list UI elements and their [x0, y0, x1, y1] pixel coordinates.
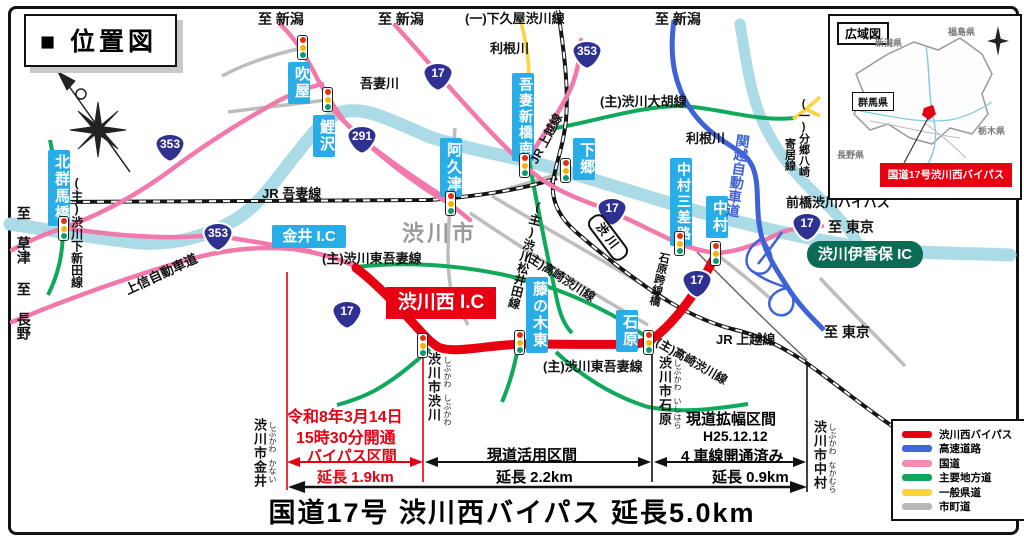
legend-row: 一般県道: [902, 486, 1020, 498]
route-shield-353: 353: [201, 221, 235, 252]
river-name-label: 吾妻川: [360, 77, 399, 91]
ic-ramp-loop: [769, 288, 793, 315]
dest-label: 至 草津: [16, 206, 31, 264]
road-name-label: (一)下久屋渋川線: [465, 12, 565, 26]
railways: [55, 10, 895, 428]
inset-callout-box: 国道17号渋川西バイパス: [880, 163, 1012, 187]
sign-koizawa: 鯉沢: [313, 115, 335, 157]
genko-length-label: 延長 2.2km: [496, 466, 573, 487]
bypass-length-label: 延長 1.9km: [317, 466, 394, 487]
legend-swatch-municipal: [902, 503, 932, 510]
shield-number: 353: [570, 44, 604, 58]
railway-name-label: JR 上越線: [716, 333, 775, 347]
inset-compass-needle: [987, 38, 1009, 44]
pref-label-fukushima: 福島県: [948, 25, 975, 38]
route-shield-291: 291: [345, 124, 379, 155]
sign-fujinoki-higashi: 藤の木東: [526, 277, 548, 353]
sign-shimogo: 下郷: [573, 138, 595, 180]
legend-row: 市町道: [902, 501, 1020, 513]
sign-kanai-ic: 金井 I.C: [272, 225, 346, 248]
route-shield-353: 353: [570, 39, 604, 70]
furigana-label: しぶかわ: [267, 421, 278, 453]
traffic-signal-icon: [560, 158, 571, 183]
bypass-section-label: バイパス区間: [307, 445, 397, 466]
kakufuku-date-label: H25.12.12: [703, 428, 768, 444]
compass-arrowhead: [58, 72, 75, 90]
traffic-signal-icon: [519, 153, 530, 178]
shield-number: 291: [345, 129, 379, 143]
map-legend: 渋川西バイパス 高速道路 国道 主要地方道 一般県道 市町道: [891, 419, 1024, 521]
kakufuku-length-label: 延長 0.9km: [712, 466, 789, 487]
furigana-label: しぶかわ: [442, 394, 453, 426]
arrowhead: [793, 457, 806, 467]
city-name-label: 渋川市: [402, 222, 477, 245]
arrowhead: [425, 457, 438, 467]
shibukawa-ikaho-ic-pill: 渋川伊香保 IC: [807, 241, 923, 268]
shield-number: 17: [680, 273, 714, 287]
figure-caption: 国道17号 渋川西バイパス 延長5.0km: [0, 491, 1024, 530]
furigana-label: しぶかわ: [672, 359, 683, 391]
route-shield-17: 17: [680, 268, 714, 299]
shield-number: 353: [201, 226, 235, 240]
green-road-south-2: [502, 347, 518, 402]
dest-label: 至 東京: [828, 220, 874, 235]
legend-swatch-bypass: [902, 431, 932, 438]
legend-label: 主要地方道: [939, 470, 992, 485]
traffic-signal-icon: [674, 231, 685, 256]
sign-fukiya: 吹屋: [288, 62, 310, 104]
traffic-signal-icon: [417, 333, 428, 358]
arrowhead: [638, 457, 651, 467]
legend-row: 渋川西バイパス: [902, 428, 1020, 440]
arrowhead: [287, 457, 300, 467]
compass-ring: [76, 89, 86, 99]
dest-label: 至 東京: [824, 325, 870, 340]
traffic-signal-icon: [297, 35, 308, 60]
furigana-label: なかむら: [827, 461, 838, 493]
shibukawa-nishi-ic-box: 渋川西 I.C: [386, 287, 496, 319]
shield-number: 17: [330, 304, 364, 318]
route-shield-17: 17: [330, 299, 364, 330]
pref-label-nagano: 長野県: [837, 148, 864, 161]
pink-kamishin-road: [12, 248, 310, 322]
traffic-signal-icon: [445, 191, 456, 216]
road-name-label: (主)渋川東吾妻線: [322, 252, 422, 266]
route-shield-353: 353: [153, 132, 187, 163]
green-road-south-1: [337, 349, 430, 405]
road-name-label: 寄居線: [783, 138, 795, 171]
inset-compass-icon: [987, 26, 1009, 56]
gray-road: [820, 278, 905, 366]
river-name-label: 利根川: [686, 132, 725, 146]
sign-akutsu: 阿久津: [440, 138, 462, 197]
sign-azuma-shinbashi-minami: 吾妻新橋南: [512, 73, 534, 161]
legend-swatch-prefectural: [902, 489, 932, 496]
pref-label-niigata: 新潟県: [875, 36, 902, 49]
dest-label: 至 長野: [16, 282, 31, 340]
shield-number: 353: [153, 137, 187, 151]
location-map-figure: ■ 位置図 353 353 353 291 17 17 17 17 17 吹屋 …: [0, 0, 1024, 539]
traffic-signal-icon: [58, 216, 69, 241]
road-name-label: (主)渋川大胡線: [600, 95, 687, 109]
traffic-signal-icon: [322, 87, 333, 112]
dest-label: 至 新潟: [378, 12, 424, 27]
route-shield-17: 17: [421, 61, 455, 92]
legend-label: 渋川西バイパス: [939, 427, 1012, 442]
sign-kitagunma-bashi: 北群馬橋: [48, 150, 70, 226]
arrowhead: [654, 457, 667, 467]
furigana-label: かない: [267, 459, 278, 483]
genko-section-label: 現道活用区間: [487, 444, 577, 465]
furigana-label: いしはら: [672, 397, 683, 429]
legend-label: 一般県道: [939, 485, 981, 500]
sign-ishihara: 石原: [616, 310, 638, 352]
river-name-label: 利根川: [490, 42, 529, 56]
traffic-signal-icon: [643, 330, 654, 355]
road-name-label: (主)渋川東吾妻線: [543, 360, 643, 374]
dest-label: 至 新潟: [655, 12, 701, 27]
legend-label: 高速道路: [939, 441, 981, 456]
traffic-signal-icon: [514, 330, 525, 355]
road-name-label: (主)渋川下新田線: [70, 176, 83, 288]
legend-row: 高速道路: [902, 443, 1020, 455]
route-shield-17: 17: [790, 211, 824, 242]
legend-row: 主要地方道: [902, 472, 1020, 484]
kakufuku-lanes-label: 4 車線開通済み: [681, 445, 784, 466]
legend-swatch-expressway: [902, 445, 932, 452]
railway-name-label: JR 吾妻線: [262, 187, 321, 201]
municipality-label: 渋川市渋川: [424, 352, 443, 422]
shield-number: 17: [595, 201, 629, 215]
shield-number: 17: [790, 216, 824, 230]
furigana-label: しぶかわ: [442, 356, 453, 388]
arrowhead: [410, 457, 423, 467]
dest-label: 至 新潟: [258, 12, 304, 27]
sign-nakamura: 中村: [706, 196, 728, 238]
traffic-signal-icon: [710, 241, 721, 266]
pref-label-tochigi: 栃木県: [978, 124, 1005, 137]
legend-label: 市町道: [939, 499, 971, 514]
legend-row: 国道: [902, 457, 1020, 469]
road-name-label: (一)分郷八崎: [797, 98, 809, 177]
page-title: ■ 位置図: [24, 14, 177, 67]
legend-swatch-major-local: [902, 474, 932, 481]
legend-swatch-national: [902, 460, 932, 467]
wide-area-inset-map: 広域図 新潟県 福島県 栃木県 長野県 群馬県 国道17号渋川西バイパス: [828, 14, 1022, 200]
furigana-label: しぶかわ: [827, 423, 838, 455]
legend-label: 国道: [939, 456, 960, 471]
shield-number: 17: [421, 66, 455, 80]
pref-label-gunma: 群馬県: [852, 92, 894, 111]
kakufuku-section-label: 現道拡幅区間: [686, 408, 776, 429]
